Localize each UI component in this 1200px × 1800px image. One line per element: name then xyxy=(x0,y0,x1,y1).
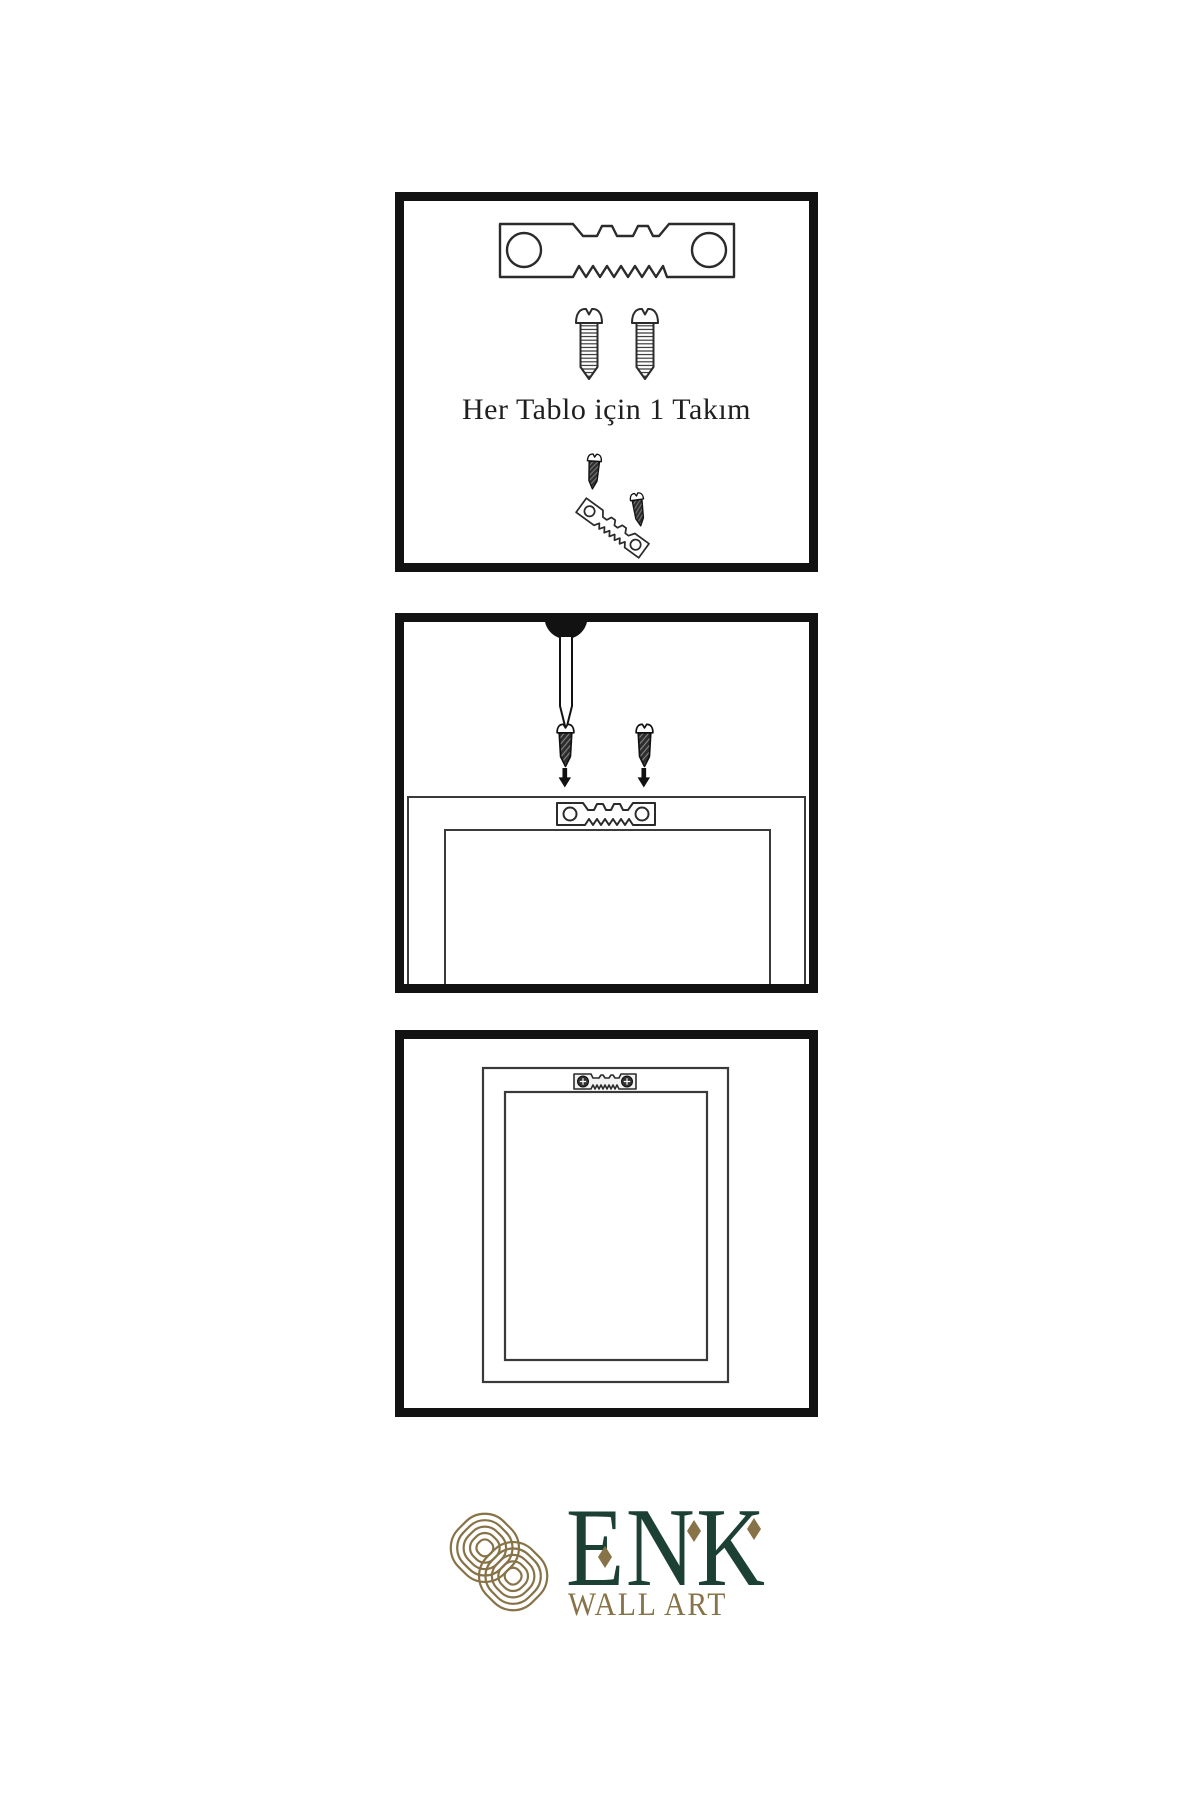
knot-icon xyxy=(438,1496,560,1628)
screw-icon xyxy=(576,309,602,379)
wall-nail-icon xyxy=(545,622,587,730)
step-3-illustration xyxy=(404,1039,809,1408)
down-arrow-icon xyxy=(559,768,571,788)
step-1-panel: Her Tablo için 1 Takım xyxy=(395,192,818,572)
step-2-illustration xyxy=(404,622,809,984)
step-1-illustration xyxy=(404,201,809,563)
step-1-caption: Her Tablo için 1 Takım xyxy=(404,393,809,427)
down-arrow-icon xyxy=(638,768,650,788)
step-3-panel xyxy=(395,1030,818,1417)
frame-back-icon xyxy=(408,797,805,984)
frame-front-icon xyxy=(483,1068,728,1382)
dark-screw-icon xyxy=(636,724,653,766)
instruction-sheet: Her Tablo için 1 Takım xyxy=(0,0,1200,1800)
dark-screw-icon xyxy=(557,724,574,766)
sawtooth-hanger-icon xyxy=(500,224,734,277)
brand-subtitle: WALL ART xyxy=(568,1589,727,1622)
step-2-panel xyxy=(395,613,818,993)
screw-icon xyxy=(632,309,658,379)
screw-into-hanger-icon xyxy=(576,454,649,558)
